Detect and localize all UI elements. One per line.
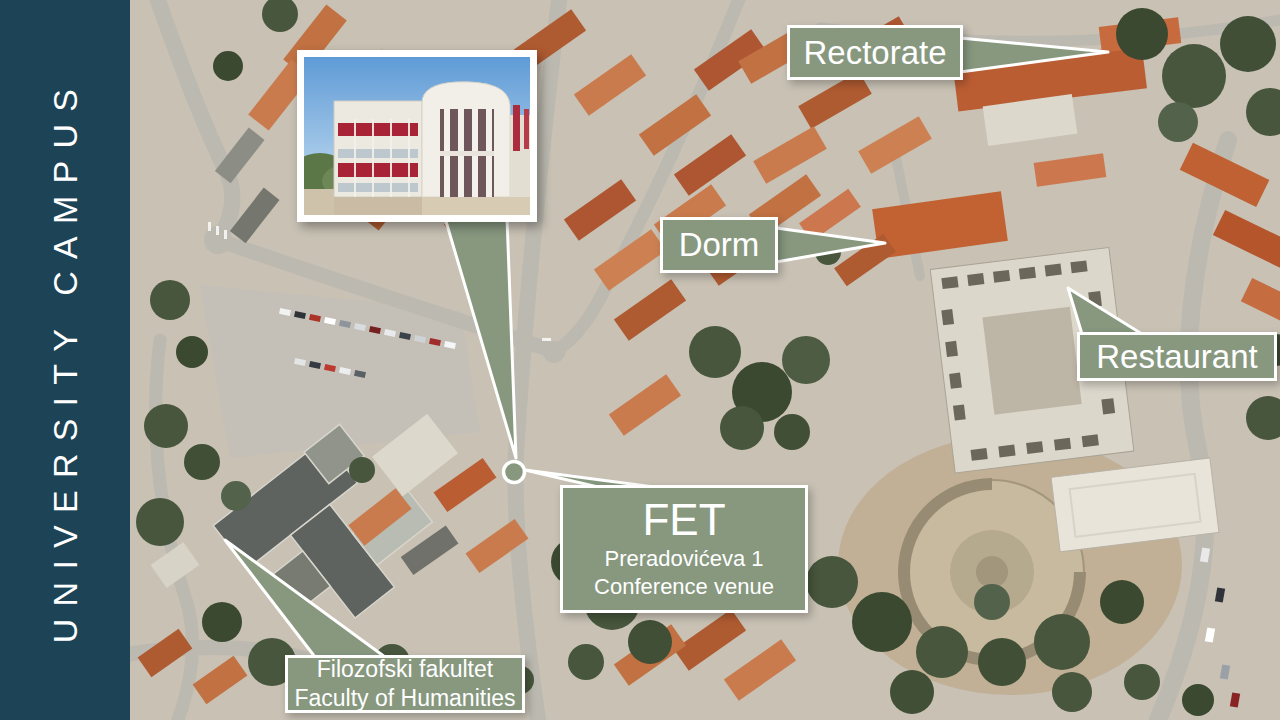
- venue-photo-frame: [297, 50, 537, 222]
- faculty-label-line1: Filozofski fakultet: [317, 655, 493, 684]
- sidebar-title: UNIVERSITY CAMPUS: [46, 77, 85, 643]
- campus-slide: UNIVERSITY CAMPUS: [0, 0, 1280, 720]
- fet-building-photo: [304, 57, 530, 215]
- dorm-label: Dorm: [679, 226, 760, 264]
- callout-rectorate: Rectorate: [787, 25, 963, 80]
- sidebar: UNIVERSITY CAMPUS: [0, 0, 130, 720]
- fet-title: FET: [642, 496, 725, 544]
- callout-dorm: Dorm: [660, 217, 778, 273]
- callout-faculty: Filozofski fakultet Faculty of Humanitie…: [285, 655, 525, 713]
- campus-map: Rectorate Dorm Restaurant FET Preradović…: [130, 0, 1280, 720]
- restaurant-label: Restaurant: [1096, 338, 1257, 376]
- rectorate-label: Rectorate: [803, 34, 946, 72]
- faculty-label-line2: Faculty of Humanities: [294, 684, 515, 713]
- callout-fet: FET Preradovićeva 1 Conference venue: [560, 485, 808, 613]
- fet-subtitle: Conference venue: [594, 573, 774, 602]
- callout-restaurant: Restaurant: [1077, 332, 1277, 381]
- fet-address: Preradovićeva 1: [605, 545, 764, 574]
